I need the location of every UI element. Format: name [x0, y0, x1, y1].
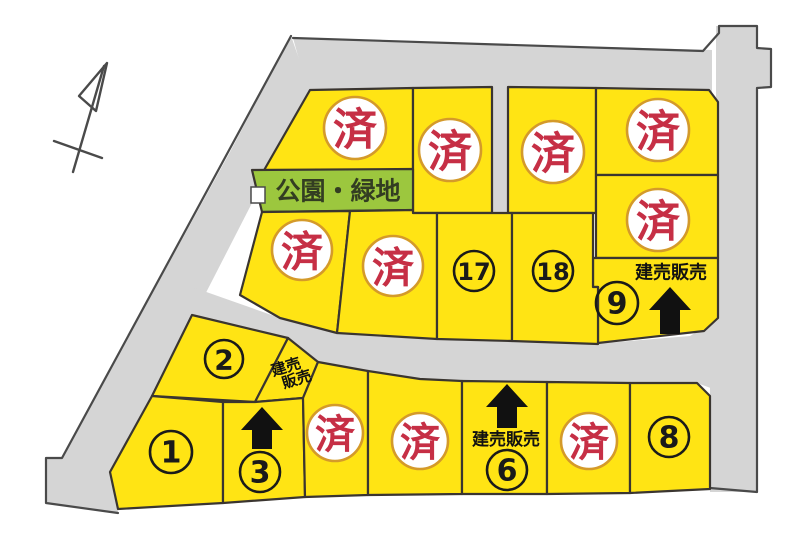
svg-text:済: 済 [315, 412, 356, 458]
svg-text:済: 済 [428, 127, 473, 178]
road-access-strip [492, 87, 508, 213]
svg-text:済: 済 [531, 129, 576, 180]
sold-badge: 済 [307, 405, 363, 461]
sold-badge: 済 [522, 121, 584, 183]
sold-badge: 済 [392, 413, 448, 469]
sale-label-lot9: 建売販売 [635, 262, 707, 284]
sold-badge: 済 [324, 97, 386, 159]
svg-text:済: 済 [400, 420, 441, 466]
north-arrow-icon [54, 63, 107, 172]
svg-text:17: 17 [457, 258, 490, 286]
sold-badge: 済 [272, 220, 332, 280]
svg-text:済: 済 [281, 228, 324, 277]
svg-text:6: 6 [497, 454, 518, 489]
sold-badge: 済 [363, 236, 423, 296]
road-top [293, 38, 712, 92]
sold-badge: 済 [419, 119, 481, 181]
svg-text:済: 済 [636, 107, 681, 158]
sold-badge: 済 [627, 99, 689, 161]
sold-badge: 済 [627, 189, 689, 251]
park-label: 公園・緑地 [275, 177, 400, 206]
lot-map-canvas: 公園・緑地 済 済 済 済 済 済 済 済 済 済 17 [0, 0, 800, 540]
svg-text:8: 8 [659, 421, 680, 456]
svg-text:9: 9 [607, 287, 628, 322]
svg-text:済: 済 [372, 244, 415, 293]
svg-text:3: 3 [250, 456, 271, 491]
svg-text:2: 2 [214, 344, 233, 377]
svg-text:済: 済 [333, 105, 378, 156]
road-east-stub [757, 48, 771, 88]
sale-label-lot6: 建売販売 [472, 429, 540, 450]
svg-text:済: 済 [569, 420, 610, 466]
svg-text:済: 済 [636, 197, 681, 248]
svg-text:18: 18 [536, 258, 569, 286]
park-edge-marker [251, 187, 265, 203]
svg-text:1: 1 [161, 436, 182, 471]
sold-badge: 済 [561, 413, 617, 469]
